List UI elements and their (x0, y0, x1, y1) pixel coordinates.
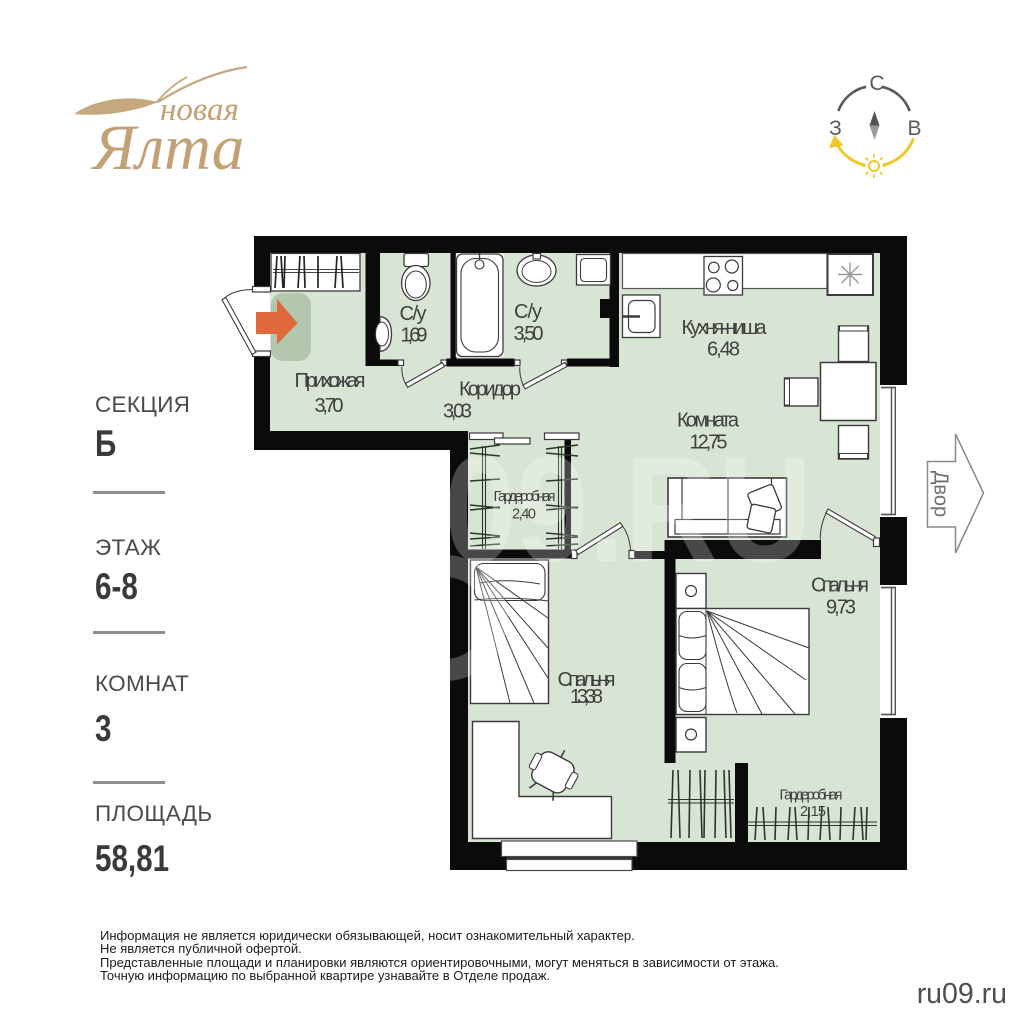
svg-text:Спальня: Спальня (811, 575, 869, 597)
svg-text:Прихожая: Прихожая (295, 370, 366, 392)
svg-text:9,73: 9,73 (826, 597, 856, 619)
svg-text:С: С (869, 72, 884, 95)
svg-text:З: З (829, 117, 842, 140)
svg-text:Коридор: Коридор (459, 379, 521, 401)
svg-text:3,70: 3,70 (315, 395, 344, 417)
svg-text:Двор: Двор (930, 471, 952, 517)
svg-text:С/у: С/у (400, 303, 427, 325)
svg-text:13,38: 13,38 (570, 686, 603, 708)
svg-text:3,50: 3,50 (514, 323, 544, 345)
svg-text:12,75: 12,75 (690, 432, 728, 454)
svg-text:2,40: 2,40 (512, 507, 536, 523)
svg-text:1,69: 1,69 (401, 325, 428, 347)
svg-text:Комната: Комната (677, 410, 740, 432)
svg-text:3,03: 3,03 (443, 401, 472, 423)
svg-text:6,48: 6,48 (707, 339, 740, 361)
svg-text:Гардеробная: Гардеробная (780, 788, 843, 804)
svg-text:Гардеробная: Гардеробная (494, 489, 556, 505)
svg-text:2,15: 2,15 (800, 804, 826, 820)
svg-text:Кухня-ниша: Кухня-ниша (682, 317, 768, 339)
svg-text:С/у: С/у (514, 301, 542, 323)
svg-text:09.RU: 09.RU (444, 425, 812, 593)
svg-text:В: В (907, 117, 921, 140)
